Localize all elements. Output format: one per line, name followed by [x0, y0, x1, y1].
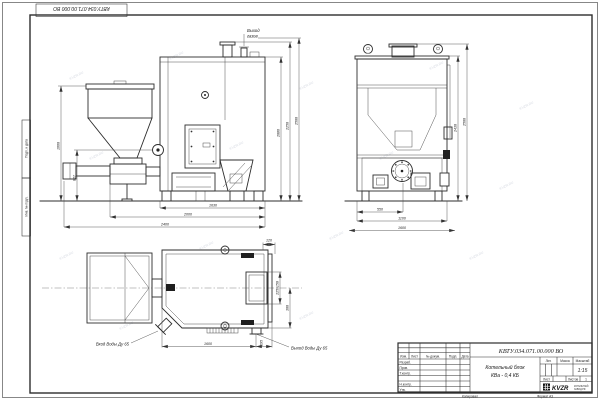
- watermark: KVZR.RU: [299, 310, 315, 321]
- logo-sub1: КОТЕЛЬНЫЙ: [574, 385, 589, 388]
- lifting-lug-left: [364, 45, 373, 54]
- stamp-number: КВТУ.034.071.00.000 ВО: [53, 5, 110, 11]
- chimney-collar: [392, 46, 414, 57]
- dim-overall-width: 1600: [398, 226, 406, 230]
- col-list: Лист: [411, 354, 418, 358]
- mass-label: Масса: [560, 359, 570, 363]
- dim-body-width: 1100: [398, 217, 406, 221]
- burner-center: [401, 170, 404, 173]
- outer-border: [3, 3, 598, 398]
- door-bolts: [191, 131, 215, 163]
- opening-right: [411, 173, 430, 189]
- dim-burner-offset: 550: [377, 208, 383, 212]
- side-bracket: [444, 127, 452, 139]
- outlet-stub: [252, 328, 261, 334]
- row-checked: Пров.: [400, 366, 409, 370]
- col-date: Дата: [461, 354, 468, 358]
- lug-hole-right: [437, 47, 440, 50]
- footer-format: Формат А3: [537, 395, 553, 399]
- inlet-leader: [131, 331, 158, 343]
- leg-right: [435, 191, 442, 201]
- company-logo: KVZR КОТЕЛЬНЫЙ ЗАВОД.РФ: [543, 384, 589, 393]
- watermark: KVZR.RU: [199, 240, 215, 251]
- opening-left-inner: [377, 178, 385, 185]
- chimney-flange: [389, 44, 417, 47]
- watermark: KVZR.RU: [519, 100, 535, 111]
- callout-gas-line1: Выход: [247, 28, 260, 33]
- leg-left: [162, 191, 171, 201]
- row-developed: Разраб.: [400, 360, 412, 364]
- body-inner: [166, 254, 264, 324]
- auger-pad: [166, 284, 175, 291]
- boiler-plan: [156, 246, 272, 334]
- dim-overall-width: 2400: [160, 223, 169, 227]
- auger-tube: [76, 166, 110, 176]
- row-ncontrol: Н.контр.: [400, 382, 412, 386]
- side-handle: [440, 173, 449, 186]
- furnace-door-inner: [189, 129, 216, 164]
- leg-right: [254, 191, 263, 201]
- margin-label-1: Подп. и дата: [25, 139, 29, 158]
- lug-hole-bottom: [224, 325, 227, 328]
- dim-frame-height: 2430: [454, 124, 458, 133]
- row-approved: Утв.: [400, 388, 406, 392]
- pad-top: [241, 253, 254, 258]
- pad-bottom: [241, 320, 254, 325]
- watermark: KVZR.RU: [59, 250, 75, 261]
- left-columns: [409, 343, 470, 392]
- watermark: KVZR.RU: [69, 70, 85, 81]
- opening-left: [373, 175, 388, 188]
- lug-hole-left: [367, 47, 370, 50]
- extension-lines: [58, 38, 301, 227]
- dim-body-length: 1600: [204, 342, 212, 346]
- watermark-layer: KVZR.RU KVZR.RU KVZR.RU KVZR.RU KVZR.RU …: [59, 50, 535, 331]
- inner-hatch: [395, 131, 412, 147]
- furnace-door: [185, 125, 220, 168]
- watermark: KVZR.RU: [379, 150, 395, 161]
- col-izm: Изм.: [400, 354, 407, 358]
- grate-hatch: [210, 328, 234, 333]
- drawing-sheet: KVZR.RU KVZR.RU KVZR.RU KVZR.RU KVZR.RU …: [0, 0, 600, 400]
- margin-label-2: Инв. № подл.: [25, 196, 29, 216]
- watermark: KVZR.RU: [429, 60, 445, 71]
- leg-left: [362, 191, 369, 201]
- sheets-value: 1: [585, 377, 587, 381]
- ash-drawer: [172, 173, 215, 191]
- top-fitting: [250, 52, 259, 57]
- sheets-label: Листов: [568, 377, 579, 381]
- auger-flange-dot: [156, 148, 159, 151]
- col-doc: № докум.: [426, 354, 440, 358]
- logo-text: KVZR: [552, 386, 569, 392]
- fuel-hopper: [86, 81, 154, 164]
- callout-water-inlet: Вход Воды Ду 65: [96, 342, 130, 347]
- auger-feeder: [63, 163, 160, 201]
- watermark: KVZR.RU: [89, 150, 105, 161]
- side-dimensions: 2430 2500 550 1100 1600: [349, 44, 469, 231]
- dim-hopper-height: 1660: [57, 142, 61, 150]
- ash-pan: [220, 160, 253, 191]
- scale-value: 1:15: [578, 368, 588, 374]
- boiler-body-front: [153, 42, 266, 201]
- water-callouts: Вход Воды Ду 65 Выход Воды Ду 65: [96, 331, 328, 351]
- inner-hopper: [368, 88, 436, 150]
- dim-feed-width: 2000: [183, 213, 192, 217]
- row-tcontrol: Т.контр.: [400, 371, 412, 375]
- ash-pan-legs: [230, 191, 244, 201]
- watermark: KVZR.RU: [229, 140, 245, 151]
- ash-drawer-seams: [176, 177, 211, 187]
- dim-outlet-spacing: 300: [286, 305, 290, 311]
- dim-outlet-offset: 195: [260, 340, 264, 346]
- watermark: KVZR.RU: [119, 320, 135, 331]
- hopper-neck-flange: [114, 158, 142, 164]
- dim-overall-height: 2500: [295, 117, 299, 126]
- lifting-lug-right: [434, 45, 443, 54]
- chimney-cap: [220, 42, 235, 45]
- door-handle: [203, 143, 210, 147]
- side-pad: [443, 150, 450, 159]
- front-dimensions: 1660 827 2086 2250 2500 1630 2000 2400: [57, 38, 302, 227]
- gas-outlet-pipe: [241, 48, 247, 57]
- watermark: KVZR.RU: [169, 50, 185, 61]
- dim-body-height: 2086: [277, 129, 281, 138]
- lit-label: Лит.: [546, 359, 552, 363]
- gas-outlet-callout: Выход газов: [244, 28, 260, 46]
- sheet-frame: КВТУ.034.071.00.000 ВО Подп. и дата Инв.…: [3, 3, 598, 399]
- dim-overall-height: 2500: [463, 118, 467, 127]
- feeder-foot: [122, 199, 132, 201]
- watermark: KVZR.RU: [499, 180, 515, 191]
- dim-door-opening: 225x150: [276, 281, 280, 296]
- sight-port-dot: [204, 94, 206, 96]
- title-block: Изм. Лист № докум. Подп. Дата Разраб. Пр…: [398, 343, 592, 392]
- col-sign: Подп.: [449, 354, 458, 358]
- dim-chimney-height: 2250: [286, 122, 290, 131]
- hopper-lid: [86, 84, 154, 89]
- inner-frame: [30, 15, 592, 393]
- watermark: KVZR.RU: [329, 230, 345, 241]
- scale-label: Масштаб: [576, 359, 590, 363]
- body-outline: [162, 250, 268, 328]
- inlet-stub: [158, 318, 172, 332]
- boiler-body-side: [355, 44, 452, 201]
- product-name-line1: Котельный блок: [485, 364, 525, 371]
- watermark: KVZR.RU: [469, 250, 485, 261]
- side-view: 2430 2500 550 1100 1600: [345, 44, 469, 231]
- chimney-stub: [223, 45, 232, 57]
- dim-burner-axis: 827: [73, 174, 77, 181]
- burner-connector: [146, 167, 160, 176]
- footer-copy: Копировал: [462, 395, 478, 399]
- dim-body-width: 1630: [209, 204, 217, 208]
- opening-right-inner: [415, 177, 426, 186]
- logo-sub2: ЗАВОД.РФ: [574, 388, 586, 391]
- watermark: KVZR.RU: [299, 80, 315, 91]
- product-name-line2: КВа - 0,4 КБ: [491, 373, 520, 379]
- leg-mid: [196, 191, 205, 201]
- dim-wall-offset: 120: [266, 239, 272, 243]
- sheet-label: Лист: [543, 377, 550, 381]
- doc-number: КВТУ.034.071.00.000 ВО: [498, 348, 564, 355]
- callout-water-outlet: Выход Воды Ду 65: [291, 346, 328, 351]
- callout-gas-line2: газов: [247, 34, 258, 39]
- logo-icon: [543, 384, 550, 391]
- hopper-body: [88, 89, 152, 118]
- plan-view: Вход Воды Ду 65 Выход Воды Ду 65 120 225…: [42, 239, 328, 351]
